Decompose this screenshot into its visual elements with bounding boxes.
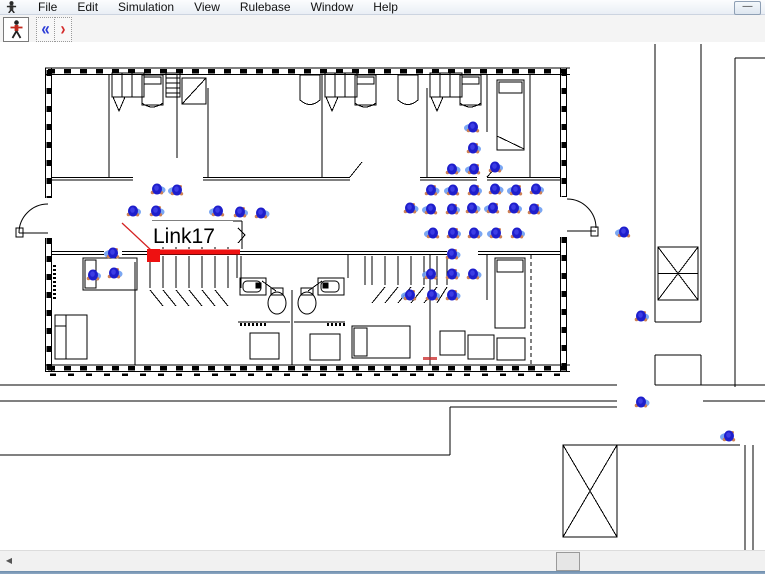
agent-dot <box>528 204 543 215</box>
agent-dot <box>255 208 270 219</box>
agent-dot <box>424 228 439 239</box>
wall-window-ticks <box>48 71 568 368</box>
agent-dot <box>422 204 437 215</box>
menu-bar: File Edit Simulation View Rulebase Windo… <box>0 0 765 15</box>
simulation-canvas[interactable]: Link17 <box>0 0 765 574</box>
minimize-button[interactable]: — <box>734 1 761 15</box>
agent-dot <box>150 206 165 217</box>
agent-dot <box>404 203 419 214</box>
scroll-left-arrow-icon[interactable]: ◀ <box>1 553 17 569</box>
horizontal-scrollbar[interactable]: ◀ <box>0 550 765 571</box>
double-chevron-left-icon: « <box>41 20 49 39</box>
agent-dot <box>468 185 482 196</box>
agent-dot <box>104 248 119 259</box>
agent-dot <box>467 143 481 154</box>
menu-item-file[interactable]: File <box>28 0 67 14</box>
agent-dot <box>511 228 525 239</box>
menu-item-help[interactable]: Help <box>363 0 408 14</box>
agent-dot <box>465 164 480 175</box>
menu-item-view[interactable]: View <box>184 0 230 14</box>
furniture <box>55 73 525 360</box>
agent-dot <box>446 164 461 175</box>
minimize-icon: — <box>743 1 753 12</box>
agent-dot <box>446 204 460 215</box>
menu-item-simulation[interactable]: Simulation <box>108 0 184 14</box>
door-left <box>16 204 48 237</box>
agent-dot <box>151 184 166 195</box>
agent-dot <box>446 269 460 280</box>
agent-dot <box>615 227 630 238</box>
app-person-icon <box>5 1 18 13</box>
agent-dot <box>484 203 499 214</box>
menu-item-edit[interactable]: Edit <box>67 0 108 14</box>
agent-dot <box>487 228 502 239</box>
person-walking-icon <box>9 20 24 39</box>
agent-dot <box>425 185 440 196</box>
agent-dot <box>635 397 650 408</box>
agent-dot <box>87 270 101 281</box>
agent-dot <box>168 185 183 196</box>
agent-dot <box>635 311 649 322</box>
agent-dot <box>468 228 483 239</box>
toolbar: « › <box>0 15 765 42</box>
bathroom-fixtures <box>243 281 339 314</box>
menu-item-rulebase[interactable]: Rulebase <box>230 0 301 14</box>
agent-dot <box>401 290 416 301</box>
link-label: Link17 <box>153 225 215 248</box>
agent-dot <box>464 122 479 133</box>
agent-dot <box>446 249 461 260</box>
agent-dot <box>466 203 481 214</box>
agent-dot <box>507 185 522 196</box>
agent-dot <box>234 207 248 218</box>
agent-dot <box>447 228 461 239</box>
crossing-box-lower <box>563 445 617 537</box>
agent-dot <box>467 269 482 280</box>
building-walls <box>45 68 570 372</box>
chevron-right-icon: › <box>61 20 66 39</box>
agent-dot <box>489 184 504 195</box>
door-right <box>567 199 598 236</box>
agent-dot <box>446 290 461 301</box>
scrollbar-thumb[interactable] <box>556 552 580 571</box>
agent-dot <box>108 268 123 279</box>
step-forward-button[interactable]: › <box>54 17 72 42</box>
rewind-button[interactable]: « <box>36 17 55 42</box>
agent-dot <box>508 203 522 214</box>
wall-window-ticks-side <box>49 70 564 370</box>
agent-dot <box>720 431 735 442</box>
agent-dot <box>426 290 440 301</box>
agent-tool-button[interactable] <box>3 17 29 42</box>
crossing-box-upper <box>658 247 698 300</box>
agent-dot <box>444 185 459 196</box>
menu-item-window[interactable]: Window <box>301 0 364 14</box>
agent-dot <box>127 206 141 217</box>
agent-dot <box>489 162 503 173</box>
agent-dot <box>209 206 224 217</box>
agent-dot <box>530 184 544 195</box>
outdoor-roads <box>0 44 765 552</box>
